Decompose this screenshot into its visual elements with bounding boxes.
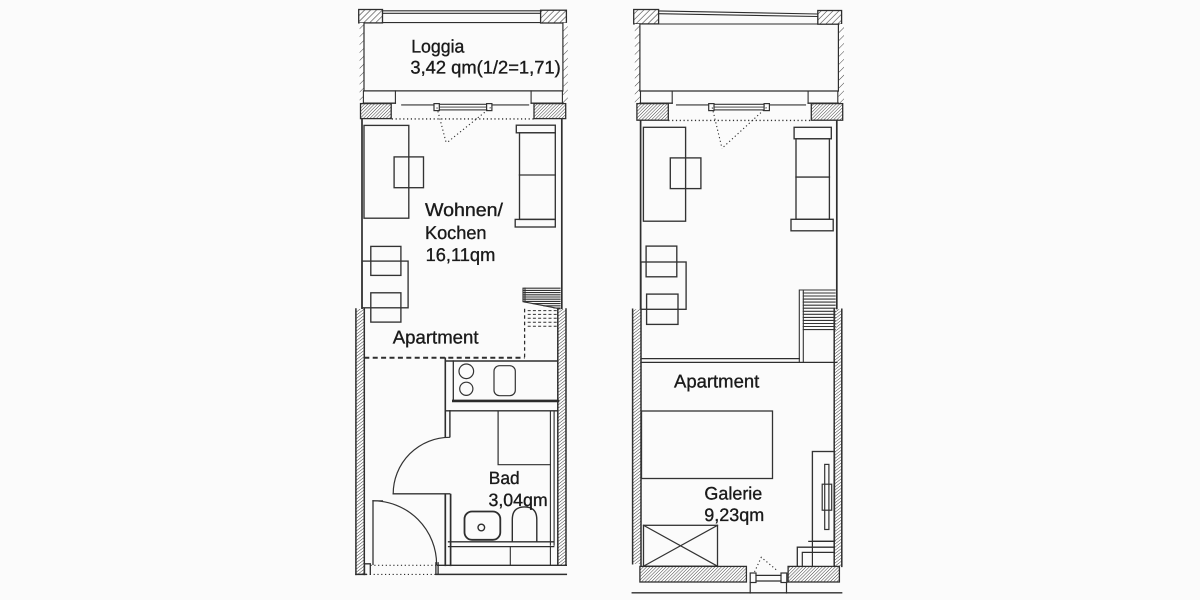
svg-text:3,04qm: 3,04qm [489,490,548,510]
svg-text:9,23qm: 9,23qm [704,505,764,525]
svg-text:Kochen: Kochen [425,222,487,243]
svg-text:Apartment: Apartment [674,371,759,392]
svg-text:Apartment: Apartment [393,327,480,348]
svg-text:16,11qm: 16,11qm [426,244,496,265]
svg-text:Loggia: Loggia [411,37,465,57]
svg-text:3,42 qm(1/2=1,71): 3,42 qm(1/2=1,71) [410,57,560,77]
svg-text:Galerie: Galerie [704,484,762,504]
svg-text:Bad: Bad [489,468,520,488]
svg-text:Wohnen/: Wohnen/ [425,199,504,220]
